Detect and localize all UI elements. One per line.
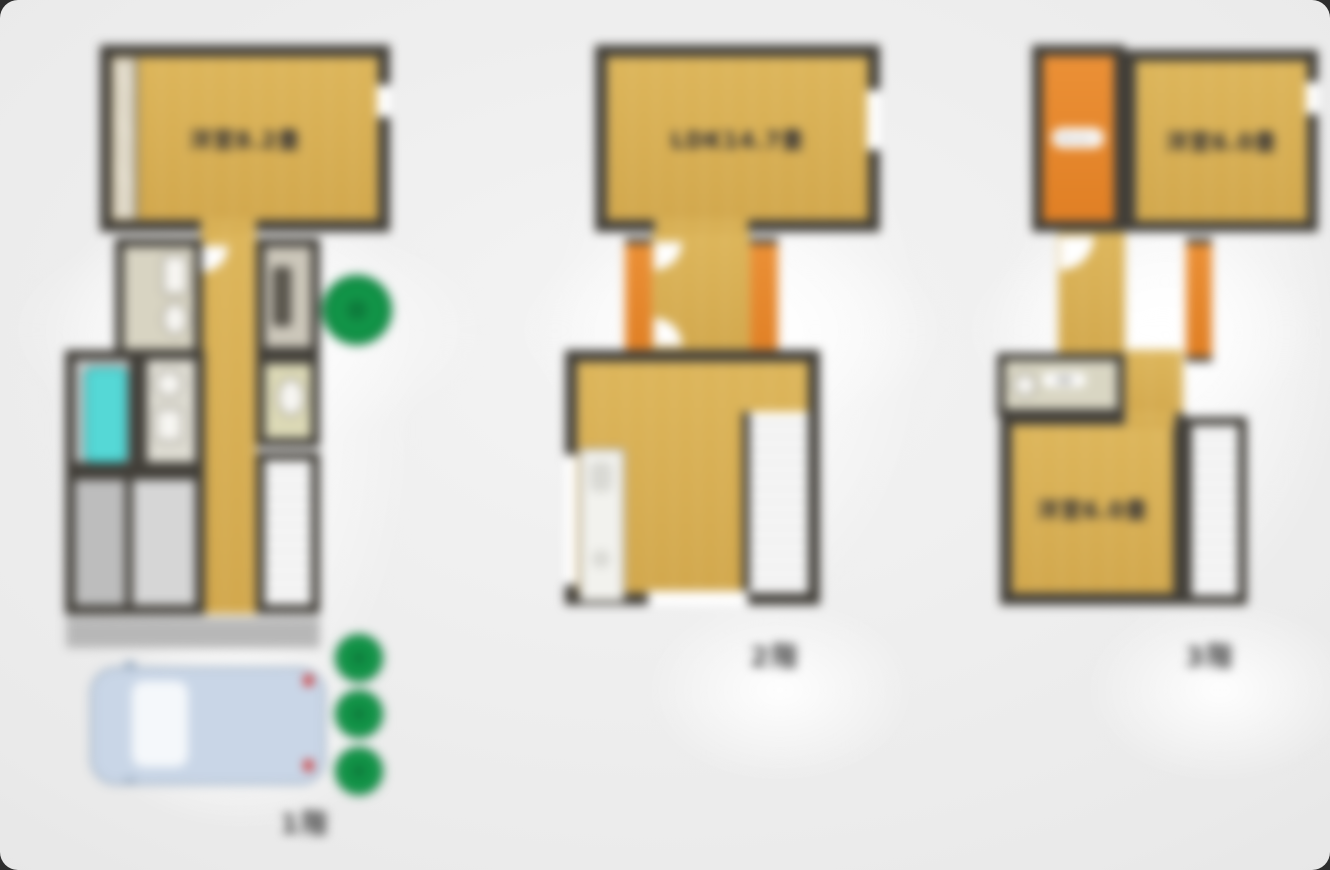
- hall-connector-3f: [1125, 350, 1183, 420]
- car-taillight: [304, 760, 313, 771]
- car-icon: [90, 663, 320, 783]
- floor-label-3f: 3階: [1160, 636, 1260, 672]
- washing-machine-icon: [162, 302, 188, 336]
- hallway-1f: [200, 232, 256, 614]
- stairs-3f: [1183, 417, 1247, 605]
- floor-plan-1f: 洋室8.2畳: [60, 40, 410, 850]
- entrance-1f: [65, 470, 205, 615]
- toilet-room-1f: [256, 355, 320, 447]
- door-opening: [648, 591, 748, 605]
- porch-step: [66, 618, 320, 648]
- floor-label-2f: 2階: [725, 636, 825, 672]
- window-icon: [565, 455, 577, 585]
- balcony-label: バルコニー: [1052, 128, 1104, 148]
- sink-icon: [155, 370, 183, 398]
- balcony-strip-3f: [1186, 238, 1212, 362]
- floorplan-image: 洋室8.2畳: [0, 0, 1330, 870]
- shrub-icon: [336, 635, 382, 681]
- shrub-icon: [336, 691, 382, 737]
- room-label: LDK14.7畳: [595, 45, 880, 232]
- car-roof: [132, 681, 188, 767]
- kitchen-counter-icon: [579, 448, 625, 602]
- kitchen-sink-icon: [590, 462, 612, 492]
- car-mirror: [124, 661, 136, 668]
- stairs-1f: [256, 452, 320, 614]
- room-label: 洋室6.0畳: [1125, 50, 1318, 232]
- cabinet-icon: [155, 408, 183, 442]
- floor-plan-2f: LDK14.7畳 2階: [560, 40, 890, 685]
- floor-label-1f: 1階: [250, 803, 360, 839]
- washbasin-icon: [162, 255, 188, 295]
- tree-icon: [323, 276, 391, 344]
- sink-icon: [1013, 373, 1037, 397]
- room-label: 洋室6.0畳: [1000, 413, 1185, 605]
- bathtub-icon: [84, 367, 128, 463]
- storage-1f: [256, 238, 320, 356]
- floorplan-artwork: 洋室8.2畳: [0, 0, 1330, 870]
- shelf-icon: [273, 267, 291, 326]
- washroom-label: 洗面: [1042, 373, 1086, 387]
- balcony-2f-left: [625, 238, 652, 362]
- car-body: [90, 667, 326, 785]
- balcony-2f-right: [750, 238, 778, 366]
- floor-plan-3f: バルコニー 洋室6.0畳 洗面 洋室6.0畳 3階: [990, 40, 1330, 685]
- stairs-2f: [742, 412, 808, 593]
- car-mirror: [124, 778, 136, 785]
- washroom-1f: [115, 238, 203, 358]
- car-taillight: [304, 675, 313, 686]
- vanity-room-1f: [137, 350, 205, 472]
- room-label: 洋室8.2畳: [100, 45, 390, 232]
- shrub-icon: [336, 748, 382, 794]
- stove-icon: [592, 550, 610, 568]
- entrance-doma: [75, 480, 133, 605]
- toilet-icon: [277, 378, 305, 416]
